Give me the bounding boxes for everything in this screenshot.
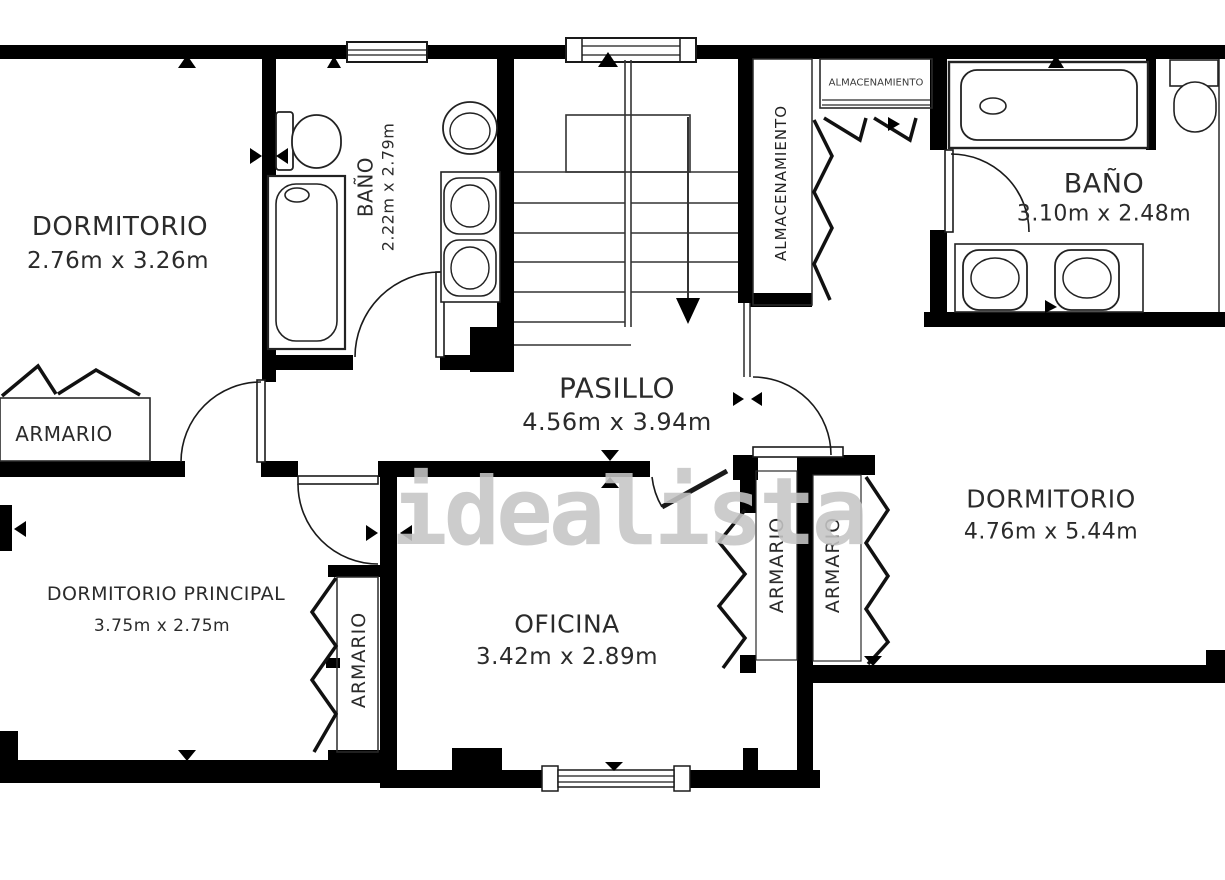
double-sink-icon xyxy=(441,172,500,302)
room-label-dormitorio2: DORMITORIO xyxy=(966,485,1136,514)
toilet2-icon xyxy=(443,102,497,154)
bathtub2-icon xyxy=(949,62,1148,148)
label-almacenamiento-vertical: ALMACENAMIENTO xyxy=(772,105,790,261)
window-stairs xyxy=(566,38,696,62)
bifold-armario1 xyxy=(2,366,140,396)
door-dormitorio-principal xyxy=(298,476,378,564)
room-dims-pasillo: 4.56m x 3.94m xyxy=(522,408,712,436)
room-label-oficina: OFICINA xyxy=(514,610,620,639)
door-dormitorio2 xyxy=(753,377,843,457)
bifold-almacenamiento-strip xyxy=(814,120,832,300)
idealista-watermark: idealista xyxy=(391,458,864,567)
room-label-dormitorio-principal: DORMITORIO PRINCIPAL xyxy=(47,583,285,605)
door-dormitorio1 xyxy=(181,380,265,462)
window-dormitorio1 xyxy=(347,42,427,62)
bifold-armario4 xyxy=(866,477,888,664)
room-dims-bano2: 3.10m x 2.48m xyxy=(1017,202,1191,227)
room-label-bano1: BAÑO 2.22m x 2.79m xyxy=(354,123,399,252)
bathtub-icon xyxy=(268,176,345,349)
label-armario1: ARMARIO xyxy=(15,422,113,446)
room-dims-dormitorio-principal: 3.75m x 2.75m xyxy=(94,616,230,636)
window-oficina xyxy=(542,766,690,791)
room-dims-dormitorio1: 2.76m x 3.26m xyxy=(27,248,209,274)
room-dims-dormitorio2: 4.76m x 5.44m xyxy=(964,520,1138,545)
room-label-pasillo: PASILLO xyxy=(559,372,675,405)
label-armario2: ARMARIO xyxy=(348,612,370,708)
floor-plan-drawing xyxy=(0,0,1225,880)
staircase xyxy=(514,52,738,345)
floor-plan: DORMITORIO 2.76m x 3.26m BAÑO 2.22m x 2.… xyxy=(0,0,1225,880)
stairs-down-arrow-icon xyxy=(676,298,700,324)
room-dims-oficina: 3.42m x 2.89m xyxy=(476,644,658,670)
door-bano1 xyxy=(355,272,444,357)
label-almacenamiento-box: ALMACENAMIENTO xyxy=(829,78,924,89)
double-vanity-icon xyxy=(955,244,1143,312)
room-label-dormitorio1: DORMITORIO xyxy=(32,212,208,242)
room-label-bano2: BAÑO xyxy=(1064,169,1144,200)
toilet3-icon xyxy=(1170,60,1218,132)
bifold-entry xyxy=(824,118,916,140)
